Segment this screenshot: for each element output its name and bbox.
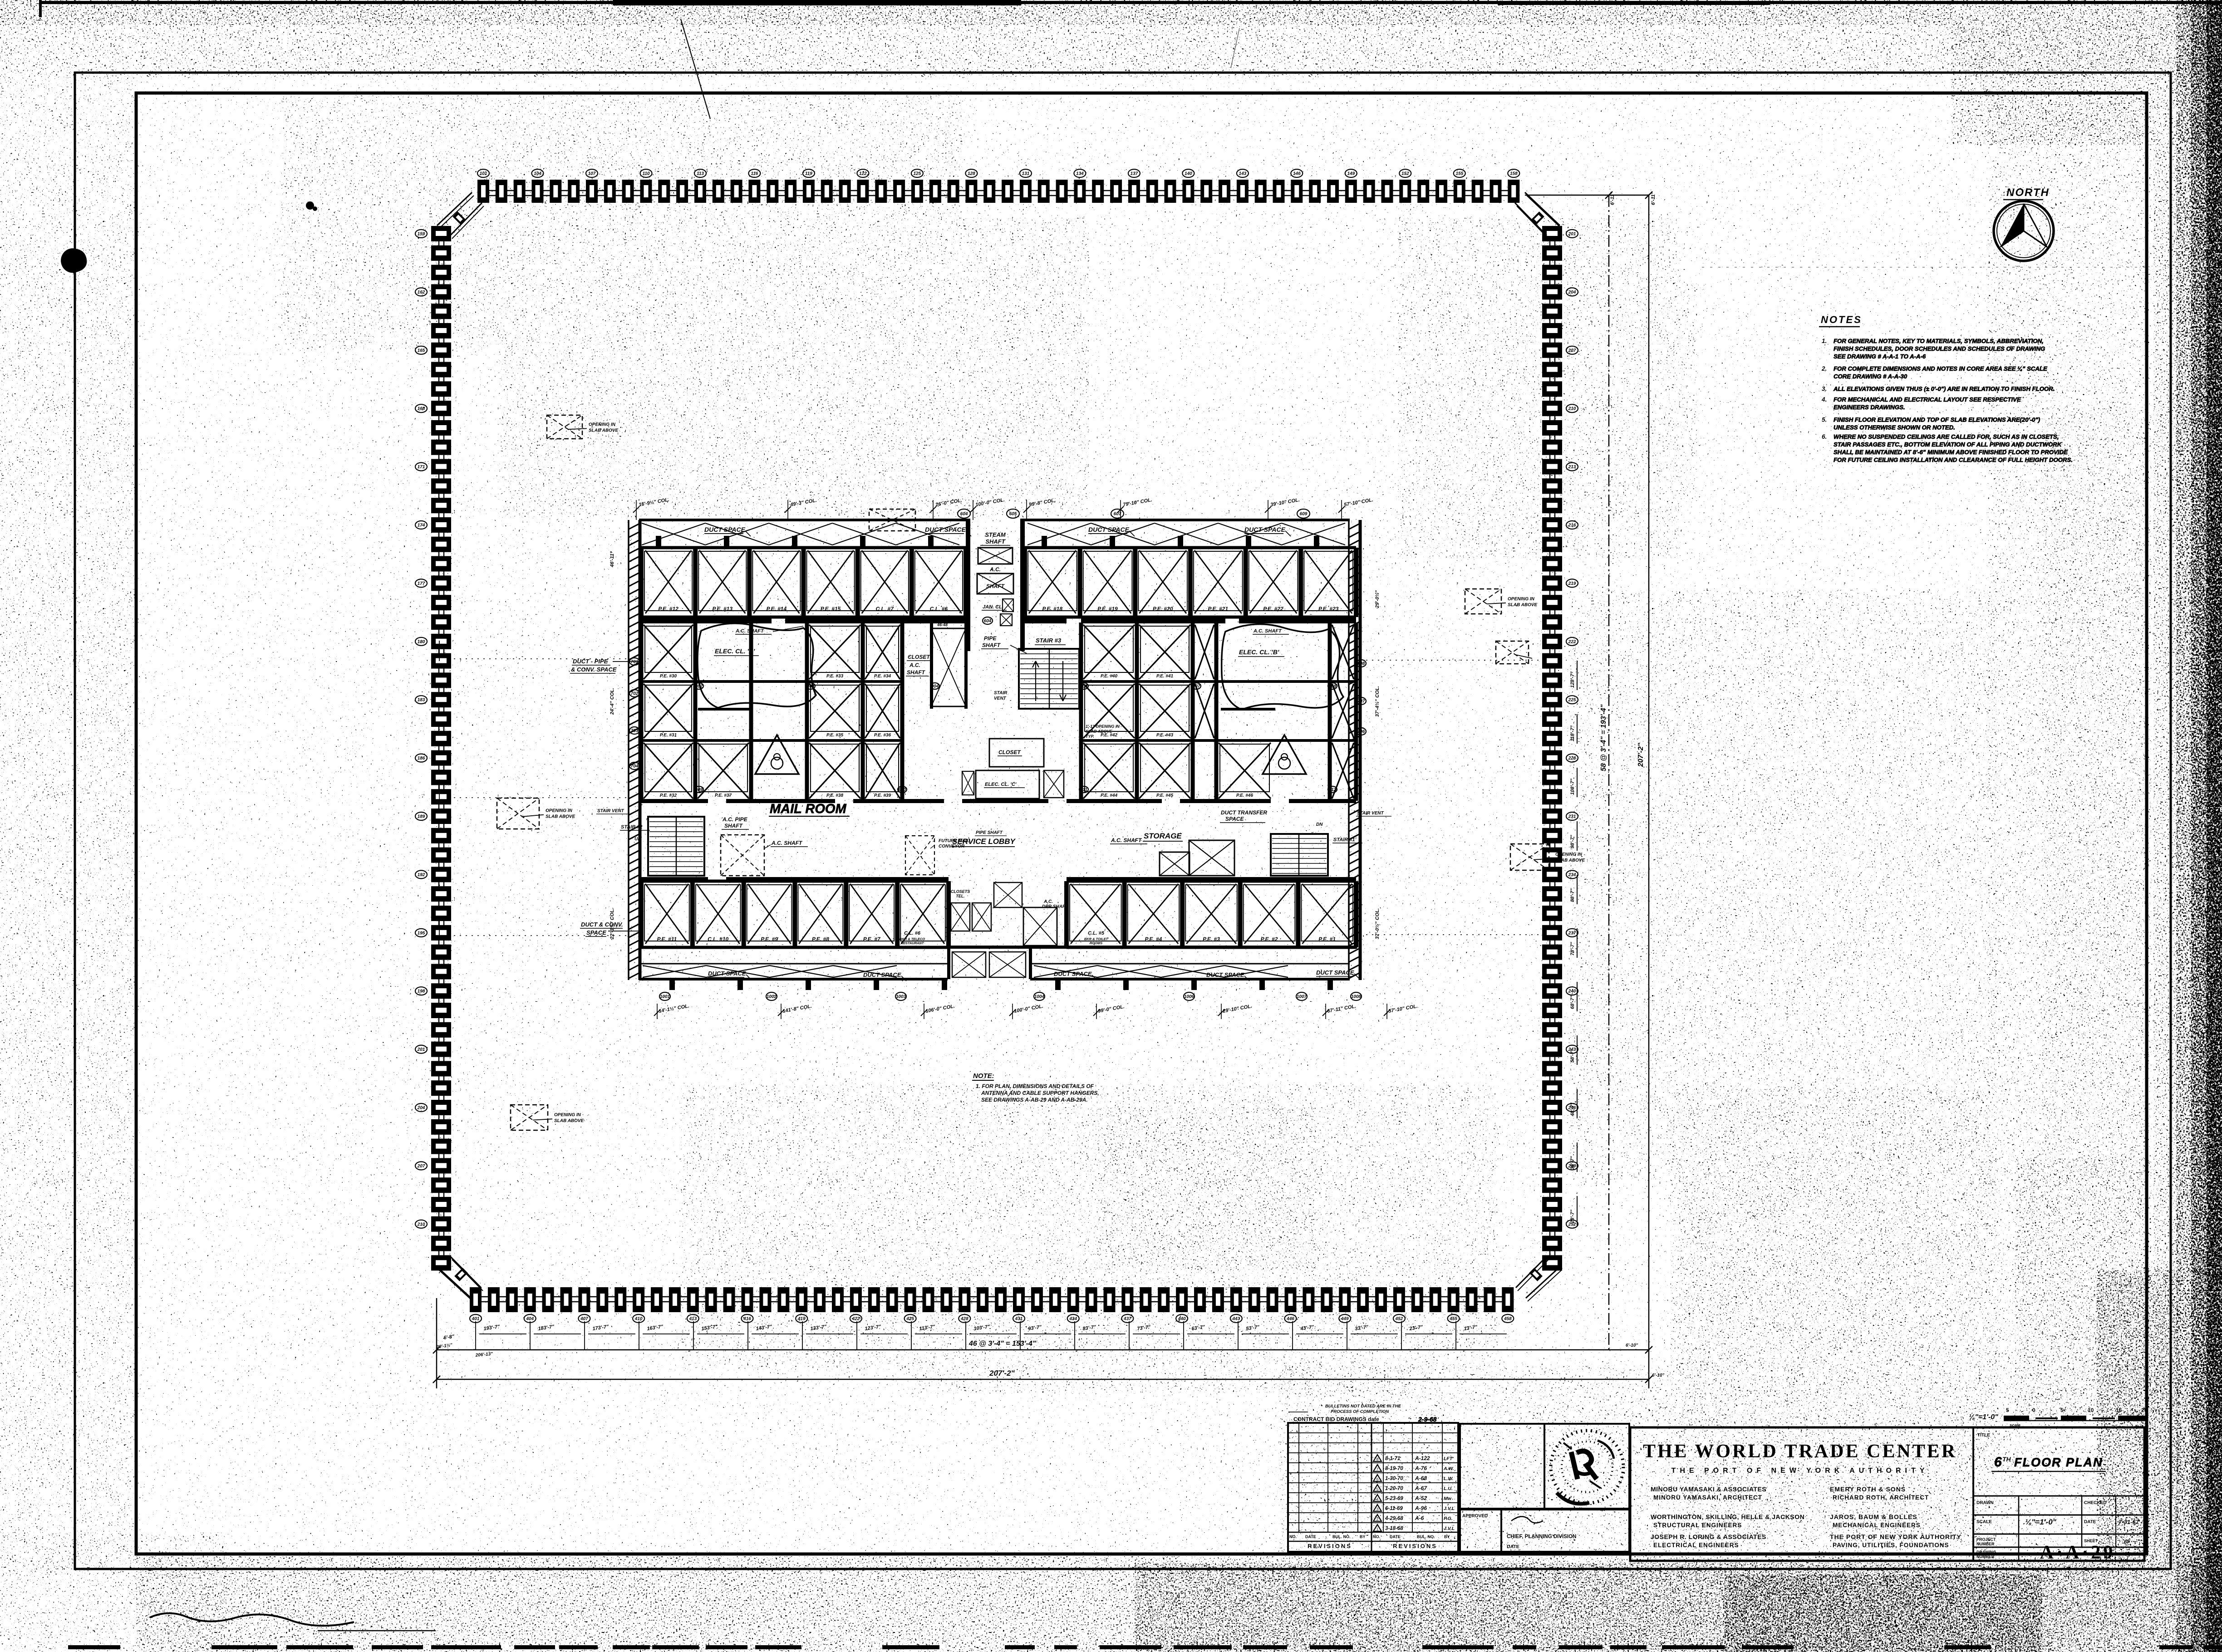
svg-text:ALL ELEVATIONS GIVEN THUS (± 0: ALL ELEVATIONS GIVEN THUS (± 0'-0") ARE …: [1833, 385, 2055, 392]
svg-text:134: 134: [1076, 172, 1084, 176]
svg-text:UNLESS OTHERWISE SHOWN OR NOTE: UNLESS OTHERWISE SHOWN OR NOTED.: [1834, 424, 1955, 431]
svg-text:A-52: A-52: [1415, 1495, 1427, 1501]
svg-text:P.E. #1: P.E. #1: [1318, 936, 1336, 942]
svg-text:192: 192: [418, 873, 425, 877]
svg-text:219: 219: [1568, 581, 1576, 586]
svg-text:146: 146: [1293, 172, 1301, 176]
svg-text:P.E. #4: P.E. #4: [1145, 936, 1162, 942]
svg-text:407: 407: [580, 1317, 588, 1322]
svg-text:OPENING IN: OPENING IN: [1555, 852, 1583, 857]
svg-text:P.E. #32: P.E. #32: [660, 793, 677, 798]
svg-text:P.E. #34: P.E. #34: [874, 674, 891, 679]
svg-text:6'-11": 6'-11": [1651, 191, 1656, 205]
svg-text:701: 701: [631, 660, 639, 665]
svg-text:108'-7": 108'-7": [1570, 778, 1575, 795]
svg-text:116: 116: [751, 172, 758, 176]
svg-text:P.E. #36: P.E. #36: [874, 733, 891, 738]
svg-text:6: 6: [1376, 1477, 1379, 1481]
svg-text:155: 155: [1455, 172, 1463, 176]
svg-text:180: 180: [418, 639, 425, 644]
svg-text:2-9-68: 2-9-68: [1418, 1416, 1437, 1423]
svg-text:RICHARD ROTH, ARCHITECT: RICHARD ROTH, ARCHITECT: [1833, 1494, 1929, 1501]
svg-text:A.C.: A.C.: [1043, 899, 1053, 904]
svg-text:P.E. #46: P.E. #46: [1236, 793, 1254, 798]
svg-text:BY: BY: [1360, 1534, 1366, 1539]
svg-text:4-29-68: 4-29-68: [1385, 1516, 1403, 1521]
svg-text:0: 0: [2032, 1407, 2035, 1413]
svg-text:910: 910: [899, 788, 906, 793]
svg-text:SPACE: SPACE: [586, 929, 606, 936]
svg-text:46 @ 3'-4" = 153'-4": 46 @ 3'-4" = 153'-4": [968, 1340, 1036, 1348]
svg-text:110: 110: [643, 172, 650, 176]
svg-text:C.L. #10: C.L. #10: [708, 936, 728, 942]
svg-text:feet: feet: [2135, 1424, 2143, 1429]
svg-text:MAIL ROOM: MAIL ROOM: [770, 802, 846, 816]
svg-text:107: 107: [588, 172, 596, 176]
svg-text:8-1-71: 8-1-71: [1385, 1456, 1400, 1461]
svg-text:706: 706: [1357, 730, 1365, 735]
svg-text:4.: 4.: [1821, 396, 1827, 403]
svg-text:240: 240: [1568, 989, 1576, 994]
svg-text:DUCT SPACE: DUCT SPACE: [1088, 526, 1130, 533]
svg-text:THE WORLD TRADE CENTER: THE WORLD TRADE CENTER: [1643, 1441, 1957, 1462]
svg-text:907: 907: [1193, 684, 1200, 689]
svg-text:7: 7: [1376, 1467, 1379, 1471]
svg-text:CHECKED: CHECKED: [2084, 1500, 2106, 1505]
svg-text:8: 8: [1376, 1457, 1379, 1461]
svg-text:5: 5: [2060, 1407, 2064, 1413]
svg-text:FINISH SCHEDULES, DOOR SCHEDUL: FINISH SCHEDULES, DOOR SCHEDULES AND SCH…: [1834, 345, 2045, 352]
svg-text:37'-0½" COL.: 37'-0½" COL.: [1375, 908, 1380, 939]
svg-text:905: 905: [1080, 684, 1088, 689]
svg-text:410: 410: [634, 1317, 643, 1322]
svg-text:1: 1: [1376, 1527, 1379, 1531]
svg-text:SPACE: SPACE: [1225, 816, 1244, 822]
svg-text:C.L. #6: C.L. #6: [930, 606, 948, 612]
svg-text:128: 128: [968, 172, 975, 176]
svg-text:JOSEPH R. LORING & ASSOCIATES: JOSEPH R. LORING & ASSOCIATES: [1651, 1533, 1766, 1540]
svg-text:1007: 1007: [1297, 995, 1307, 1000]
svg-text:L.U.: L.U.: [1444, 1486, 1453, 1491]
svg-text:ROOMS: ROOMS: [1090, 941, 1102, 945]
svg-text:STAIR #3: STAIR #3: [1036, 637, 1062, 644]
svg-text:140: 140: [1185, 172, 1192, 176]
svg-text:PAVING, UTILITIES, FOUNDATIONS: PAVING, UTILITIES, FOUNDATIONS: [1833, 1542, 1949, 1549]
svg-text:68'-7": 68'-7": [1570, 995, 1575, 1009]
svg-text:BKR & TELECO: BKR & TELECO: [900, 937, 925, 941]
svg-text:STAIR VENT: STAIR VENT: [1357, 811, 1384, 816]
svg-text:DUCT SPACE: DUCT SPACE: [1316, 969, 1354, 976]
svg-text:SEE DRAWINGS A-AB-29 AND A-AB-: SEE DRAWINGS A-AB-29 AND A-AB-29A.: [981, 1097, 1088, 1103]
svg-text:NO.: NO.: [1289, 1534, 1297, 1539]
svg-text:PROCESS OF COMPLETION: PROCESS OF COMPLETION: [1331, 1409, 1389, 1414]
svg-text:604: 604: [960, 512, 968, 517]
svg-text:1001: 1001: [660, 995, 670, 1000]
svg-text:174: 174: [418, 523, 425, 528]
svg-text:BUL. NO.: BUL. NO.: [1332, 1534, 1351, 1539]
svg-text:37'-4½" COL.: 37'-4½" COL.: [1375, 686, 1380, 717]
svg-text:119: 119: [805, 172, 812, 176]
svg-text:ENGINEERS DRAWINGS.: ENGINEERS DRAWINGS.: [1834, 404, 1905, 411]
svg-text:P.E. #9: P.E. #9: [761, 936, 778, 942]
svg-text:168: 168: [418, 407, 425, 412]
svg-text:CORE DRAWING # A-A-30: CORE DRAWING # A-A-30: [1834, 373, 1907, 380]
svg-text:SLAB ABOVE: SLAB ABOVE: [1508, 603, 1538, 608]
svg-text:6'-10": 6'-10": [1652, 1373, 1664, 1378]
svg-text:904: 904: [931, 684, 939, 689]
svg-text:2: 2: [1376, 1517, 1379, 1521]
svg-text:903: 903: [807, 684, 815, 689]
svg-text:88'-7": 88'-7": [1570, 888, 1575, 902]
svg-text:FOR MECHANICAL AND ELECTRICAL: FOR MECHANICAL AND ELECTRICAL LAYOUT SEE…: [1834, 396, 2021, 403]
svg-text:SHAFT: SHAFT: [982, 642, 1001, 648]
svg-text:20: 20: [2141, 1407, 2148, 1413]
svg-text:P.E. #3: P.E. #3: [1203, 936, 1220, 942]
svg-text:207'-2": 207'-2": [1637, 743, 1645, 767]
svg-text:REVISIONS: REVISIONS: [1308, 1543, 1352, 1549]
svg-text:SHALL BE MAINTAINED AT 8'-6" M: SHALL BE MAINTAINED AT 8'-6" MINIMUM ABO…: [1834, 449, 2068, 456]
svg-text:5.: 5.: [1822, 416, 1827, 423]
svg-text:104: 104: [534, 172, 541, 176]
svg-text:P.G.: P.G.: [1444, 1516, 1453, 1521]
svg-text:DUCT SPACE: DUCT SPACE: [1244, 526, 1286, 533]
svg-text:2.: 2.: [1821, 365, 1827, 372]
svg-text:P.E. #11: P.E. #11: [657, 936, 677, 942]
svg-text:CONVEYOR: CONVEYOR: [939, 844, 965, 849]
svg-text:FOR COMPLETE DIMENSIONS AND NO: FOR COMPLETE DIMENSIONS AND NOTES IN COR…: [1834, 365, 2048, 372]
svg-text:210: 210: [1568, 407, 1576, 412]
svg-text:ELECTRICAL ENGINEERS: ELECTRICAL ENGINEERS: [1653, 1542, 1739, 1549]
svg-text:STRUCTURAL ENGINEERS: STRUCTURAL ENGINEERS: [1653, 1522, 1742, 1529]
svg-text:CLOSETS: CLOSETS: [951, 889, 970, 894]
svg-text:DN: DN: [1316, 822, 1323, 827]
svg-text:10: 10: [2088, 1407, 2094, 1413]
svg-text:THE PORT OF NEW YORK AUTHORITY: THE PORT OF NEW YORK AUTHORITY: [1671, 1467, 1929, 1475]
svg-text:1003: 1003: [896, 995, 906, 1000]
svg-text:scale: scale: [2010, 1423, 2020, 1428]
svg-text:28'-7": 28'-7": [1570, 1209, 1575, 1224]
svg-text:A-122: A-122: [1415, 1455, 1430, 1461]
svg-text:DATE: DATE: [1305, 1534, 1316, 1539]
svg-text:P.E. #15: P.E. #15: [821, 606, 841, 612]
svg-text:909: 909: [695, 788, 703, 793]
svg-text:422: 422: [852, 1317, 860, 1322]
svg-text:431: 431: [1015, 1317, 1023, 1322]
svg-text:VENT: VENT: [994, 696, 1007, 701]
svg-text:FLOOR PLAN: FLOOR PLAN: [2014, 1456, 2103, 1469]
svg-text:P.E. #23: P.E. #23: [1318, 606, 1339, 612]
svg-text:BKR & TOILET: BKR & TOILET: [1084, 937, 1109, 941]
svg-text:428: 428: [960, 1317, 968, 1322]
svg-text:DRAWING: DRAWING: [1976, 1550, 1996, 1554]
svg-text:15: 15: [2116, 1407, 2122, 1413]
svg-text:J.V.L: J.V.L: [1444, 1506, 1455, 1511]
svg-text:STAIR #2: STAIR #2: [621, 824, 642, 830]
svg-text:24'-4" COL.: 24'-4" COL.: [610, 688, 615, 715]
svg-text:128'-7": 128'-7": [1570, 671, 1575, 688]
svg-text:P.E. #8: P.E. #8: [812, 936, 829, 942]
svg-text:APPROVED: APPROVED: [1462, 1514, 1488, 1519]
svg-text:201: 201: [417, 1047, 425, 1052]
svg-text:TEL.: TEL.: [956, 894, 965, 898]
svg-text:A.W.: A.W.: [1443, 1466, 1454, 1471]
svg-text:1-20-70: 1-20-70: [1385, 1486, 1403, 1491]
svg-text:3-18-68: 3-18-68: [1385, 1526, 1403, 1531]
svg-text:UP: UP: [634, 837, 641, 842]
svg-text:118'-7": 118'-7": [1570, 725, 1575, 741]
svg-text:165: 165: [418, 348, 425, 353]
svg-text:228: 228: [1568, 756, 1576, 761]
svg-text:177: 177: [418, 581, 425, 586]
svg-text:440: 440: [1178, 1317, 1186, 1322]
svg-text:P.E. #41: P.E. #41: [1156, 674, 1174, 679]
svg-text:1. FOR PLAN, DIMENSIONS AND DE: 1. FOR PLAN, DIMENSIONS AND DETAILS OF: [976, 1083, 1094, 1089]
svg-text:A·A·29: A·A·29: [2040, 1542, 2116, 1563]
svg-text:SHAFT: SHAFT: [985, 538, 1005, 545]
svg-text:STEAM: STEAM: [985, 531, 1006, 538]
svg-text:DUCT SPACE: DUCT SPACE: [1206, 971, 1244, 978]
svg-text:STORAGE: STORAGE: [1144, 832, 1182, 840]
svg-text:437: 437: [1123, 1317, 1131, 1322]
svg-text:TH: TH: [2002, 1456, 2011, 1463]
svg-text:P.E. #22: P.E. #22: [1263, 606, 1283, 612]
svg-text:& CONV. SPACE: & CONV. SPACE: [571, 666, 617, 673]
svg-text:JAROS, BAUM & BOLLES: JAROS, BAUM & BOLLES: [1830, 1513, 1917, 1520]
svg-text:P.E. #30: P.E. #30: [660, 674, 677, 679]
svg-text:MINORU YAMASAKI & ASSOCIATES: MINORU YAMASAKI & ASSOCIATES: [1651, 1485, 1766, 1493]
svg-text:234: 234: [1568, 873, 1576, 877]
svg-text:STAIR: STAIR: [994, 691, 1008, 696]
svg-text:A.C. SHAFT: A.C. SHAFT: [1111, 837, 1142, 843]
svg-text:DATE: DATE: [1507, 1544, 1519, 1549]
svg-text:A-67: A-67: [1415, 1485, 1427, 1491]
svg-text:NO.: NO.: [1373, 1534, 1380, 1539]
svg-text:OPENING IN: OPENING IN: [546, 809, 573, 814]
svg-text:SHAFT: SHAFT: [907, 669, 926, 676]
svg-text:DATE: DATE: [1390, 1534, 1401, 1539]
svg-text:SLAB ABOVE: SLAB ABOVE: [554, 1118, 584, 1123]
svg-text:609: 609: [1300, 512, 1308, 517]
svg-text:A.C. SHAFT: A.C. SHAFT: [1253, 628, 1282, 634]
svg-text:ANTENNA AND CABLE SUPPORT HANG: ANTENNA AND CABLE SUPPORT HANGERS,: [981, 1090, 1099, 1096]
svg-text:5: 5: [1376, 1487, 1379, 1491]
svg-text:908: 908: [1329, 684, 1337, 689]
svg-text:1.: 1.: [1822, 338, 1827, 344]
svg-text:PROJECT: PROJECT: [1976, 1537, 1996, 1542]
svg-text:1002: 1002: [767, 995, 777, 1000]
svg-text:1-30-70: 1-30-70: [1385, 1476, 1403, 1481]
svg-text:419: 419: [797, 1317, 806, 1322]
svg-text:P.E. #2: P.E. #2: [1261, 936, 1278, 942]
svg-text:PIPE: PIPE: [984, 635, 997, 642]
svg-text:C.L. #5: C.L. #5: [1088, 931, 1105, 936]
svg-text:213: 213: [1568, 465, 1576, 470]
svg-text:1'-1" OPENING IN: 1'-1" OPENING IN: [1086, 724, 1120, 729]
svg-text:A-76: A-76: [1415, 1465, 1427, 1471]
svg-text:OPENING IN: OPENING IN: [1508, 597, 1535, 602]
svg-text:143: 143: [1239, 172, 1247, 176]
svg-text:STAIR PASSAGES ETC., BOTTOM EL: STAIR PASSAGES ETC., BOTTOM ELEVATION OF…: [1834, 441, 2062, 448]
svg-text:189: 189: [418, 814, 425, 819]
svg-text:425: 425: [906, 1317, 914, 1322]
svg-text:DUCT SPACE: DUCT SPACE: [708, 970, 746, 977]
svg-text:125: 125: [914, 172, 921, 176]
svg-text:ELEC. CL. 'A': ELEC. CL. 'A': [715, 647, 755, 655]
svg-text:113: 113: [697, 172, 704, 176]
svg-text:607: 607: [1114, 512, 1121, 517]
svg-text:STAIR #1: STAIR #1: [1333, 837, 1355, 843]
svg-text:452: 452: [1395, 1317, 1403, 1322]
svg-text:P.E. #19: P.E. #19: [1097, 606, 1118, 612]
svg-text:195: 195: [418, 931, 425, 936]
svg-text:911: 911: [1080, 788, 1087, 793]
svg-text:605: 605: [1009, 512, 1017, 517]
svg-text:A.C. SHAFT: A.C. SHAFT: [735, 628, 764, 634]
svg-text:6F: 6F: [2124, 1539, 2131, 1545]
svg-text:A.C.: A.C.: [909, 662, 920, 668]
svg-text:SEE DRAWING # A-A-1 TO A-A-6: SEE DRAWING # A-A-1 TO A-A-6: [1834, 353, 1926, 360]
svg-text:158: 158: [1510, 172, 1518, 176]
svg-text:707: 707: [1357, 699, 1365, 704]
svg-text:SLAB ABOVE: SLAB ABOVE: [1555, 858, 1585, 863]
svg-text:A-68: A-68: [1415, 1475, 1427, 1481]
svg-text:186: 186: [418, 756, 425, 761]
svg-text:137: 137: [1131, 172, 1138, 176]
svg-text:ELEC. CL. 'C': ELEC. CL. 'C': [985, 782, 1017, 787]
svg-text:FOR GENERAL NOTES, KEY TO MATE: FOR GENERAL NOTES, KEY TO MATERIALS, SYM…: [1834, 338, 2044, 344]
svg-text:P.E. #44: P.E. #44: [1101, 793, 1118, 798]
svg-text:SCALE: SCALE: [1976, 1520, 1992, 1525]
svg-text:P.E. #12: P.E. #12: [658, 606, 678, 612]
svg-text:6-11-69: 6-11-69: [1385, 1506, 1403, 1511]
svg-text:LFT: LFT: [1444, 1456, 1453, 1461]
svg-text:149: 149: [1347, 172, 1355, 176]
svg-text:225: 225: [1568, 698, 1576, 703]
svg-text:JAN. CL.: JAN. CL.: [983, 604, 1003, 610]
svg-text:902: 902: [695, 684, 703, 689]
svg-text:NUMBER: NUMBER: [1976, 1542, 1995, 1546]
svg-text:MECHANICAL ENGINEERS: MECHANICAL ENGINEERS: [1833, 1522, 1921, 1529]
svg-text:CHIEF, PLANNING DIVISION: CHIEF, PLANNING DIVISION: [1507, 1534, 1576, 1539]
svg-text:237: 237: [1568, 931, 1576, 936]
svg-text:404: 404: [526, 1317, 534, 1322]
svg-text:A-96: A-96: [1415, 1505, 1427, 1511]
svg-text:SHAFT: SHAFT: [724, 823, 743, 829]
svg-text:207: 207: [1568, 348, 1576, 353]
svg-text:58'-7": 58'-7": [1570, 1049, 1575, 1063]
svg-text:703: 703: [631, 729, 639, 734]
svg-text:702: 702: [631, 691, 639, 696]
svg-text:EMERY ROTH & SONS: EMERY ROTH & SONS: [1830, 1485, 1906, 1493]
svg-text:46-48: 46-48: [937, 623, 948, 627]
svg-text:DPR SHAFT: DPR SHAFT: [1042, 904, 1068, 909]
svg-text:P.E. #14: P.E. #14: [767, 606, 787, 612]
svg-text:416: 416: [743, 1317, 751, 1322]
svg-text:STAIR VENT: STAIR VENT: [597, 809, 624, 814]
svg-text:P.E. #31: P.E. #31: [660, 733, 677, 738]
svg-text:DUCT & CONV.: DUCT & CONV.: [581, 921, 623, 928]
svg-text:131: 131: [1022, 172, 1030, 176]
svg-text:101: 101: [480, 172, 487, 176]
svg-text:P.E. #45: P.E. #45: [1156, 793, 1174, 798]
svg-text:1006: 1006: [1184, 995, 1195, 1000]
svg-text:458: 458: [1504, 1317, 1512, 1322]
svg-text:201: 201: [1568, 232, 1576, 237]
svg-text:434: 434: [1069, 1317, 1077, 1322]
svg-text:WHERE NO SUSPENDED CEILINGS AR: WHERE NO SUSPENDED CEILINGS ARE CALLED F…: [1834, 433, 2059, 440]
svg-text:L.W.: L.W.: [1444, 1476, 1453, 1481]
svg-text:7-31-67: 7-31-67: [2119, 1519, 2139, 1525]
svg-text:8-19-70: 8-19-70: [1385, 1466, 1403, 1471]
svg-text:REVISIONS: REVISIONS: [1393, 1543, 1437, 1549]
svg-text:604: 604: [984, 619, 992, 624]
svg-text:122: 122: [859, 172, 867, 176]
svg-text:204: 204: [1568, 290, 1576, 295]
svg-text:CLOSET: CLOSET: [998, 749, 1021, 755]
svg-text:SLAB ABOVE: SLAB ABOVE: [546, 814, 575, 819]
svg-text:⅛"=1'-0": ⅛"=1'-0": [2025, 1518, 2057, 1526]
svg-text:DATE: DATE: [2084, 1520, 2096, 1525]
svg-text:WORTHINGTON, SKILLING, HELLE &: WORTHINGTON, SKILLING, HELLE & JACKSON: [1651, 1513, 1804, 1520]
svg-text:231: 231: [1568, 814, 1576, 819]
svg-text:DUCT SPACE: DUCT SPACE: [925, 526, 966, 533]
svg-text:TITLE: TITLE: [1977, 1433, 1990, 1438]
svg-text:FUTURE MAIL: FUTURE MAIL: [939, 838, 969, 843]
svg-text:A.C.: A.C.: [989, 566, 1001, 573]
svg-text:210: 210: [417, 1222, 425, 1227]
svg-text:PIPE SHAFT: PIPE SHAFT: [976, 830, 1003, 835]
svg-text:NUMBER: NUMBER: [1976, 1554, 1995, 1559]
svg-text:DRAWN: DRAWN: [1976, 1500, 1994, 1505]
svg-text:A-6: A-6: [1415, 1515, 1424, 1521]
svg-text:CLOSET: CLOSET: [908, 654, 930, 660]
svg-text:P.E. #38: P.E. #38: [826, 793, 844, 798]
svg-text:RESTAURANT: RESTAURANT: [900, 941, 924, 945]
svg-text:SLAB ABOVE: SLAB ABOVE: [589, 428, 619, 433]
svg-text:THE PORT OF NEW YORK AUTHORITY: THE PORT OF NEW YORK AUTHORITY: [1830, 1533, 1961, 1540]
svg-text:FINISH FLOOR ELEVATION AND TOP: FINISH FLOOR ELEVATION AND TOP OF SLAB E…: [1834, 416, 2040, 423]
svg-text:P.E. #33: P.E. #33: [826, 674, 844, 679]
svg-text:⅛"=1'-0": ⅛"=1'-0": [1969, 1413, 1998, 1421]
svg-text:58 @ 3'-4" = 193'-4": 58 @ 3'-4" = 193'-4": [1600, 704, 1608, 771]
svg-text:3.: 3.: [1822, 385, 1827, 392]
svg-text:CONTRACT BID DRAWINGS dat: CONTRACT BID DRAWINGS date: [1293, 1416, 1379, 1422]
svg-text:401: 401: [472, 1317, 480, 1322]
svg-text:198: 198: [418, 989, 425, 994]
svg-text:443: 443: [1232, 1317, 1240, 1322]
svg-text:449: 449: [1341, 1317, 1349, 1322]
svg-text:Mw: Mw: [1444, 1496, 1452, 1501]
svg-text:162: 162: [418, 290, 425, 295]
svg-text:C.L. #6: C.L. #6: [904, 931, 921, 936]
svg-text:1008: 1008: [1351, 995, 1362, 1000]
svg-text:222: 222: [1568, 639, 1576, 644]
svg-text:4: 4: [1376, 1497, 1379, 1501]
svg-text:46'-11": 46'-11": [610, 551, 615, 568]
svg-text:152: 152: [1401, 172, 1409, 176]
svg-text:22'-1½" COL.: 22'-1½" COL.: [610, 908, 615, 940]
svg-text:P.E. #43: P.E. #43: [1156, 733, 1174, 738]
svg-text:216: 216: [1568, 523, 1576, 528]
svg-text:413: 413: [688, 1317, 697, 1322]
svg-text:OPENING IN: OPENING IN: [589, 422, 616, 427]
svg-text:ELEC. CL. 'B': ELEC. CL. 'B': [1239, 648, 1279, 656]
svg-text:P.E. #13: P.E. #13: [713, 606, 733, 612]
svg-text:J.V.L: J.V.L: [1444, 1526, 1455, 1531]
svg-text:29'-0½": 29'-0½": [1375, 590, 1380, 608]
svg-text:1004: 1004: [1034, 995, 1045, 1000]
svg-text:DUCT SPACE: DUCT SPACE: [1054, 971, 1092, 977]
